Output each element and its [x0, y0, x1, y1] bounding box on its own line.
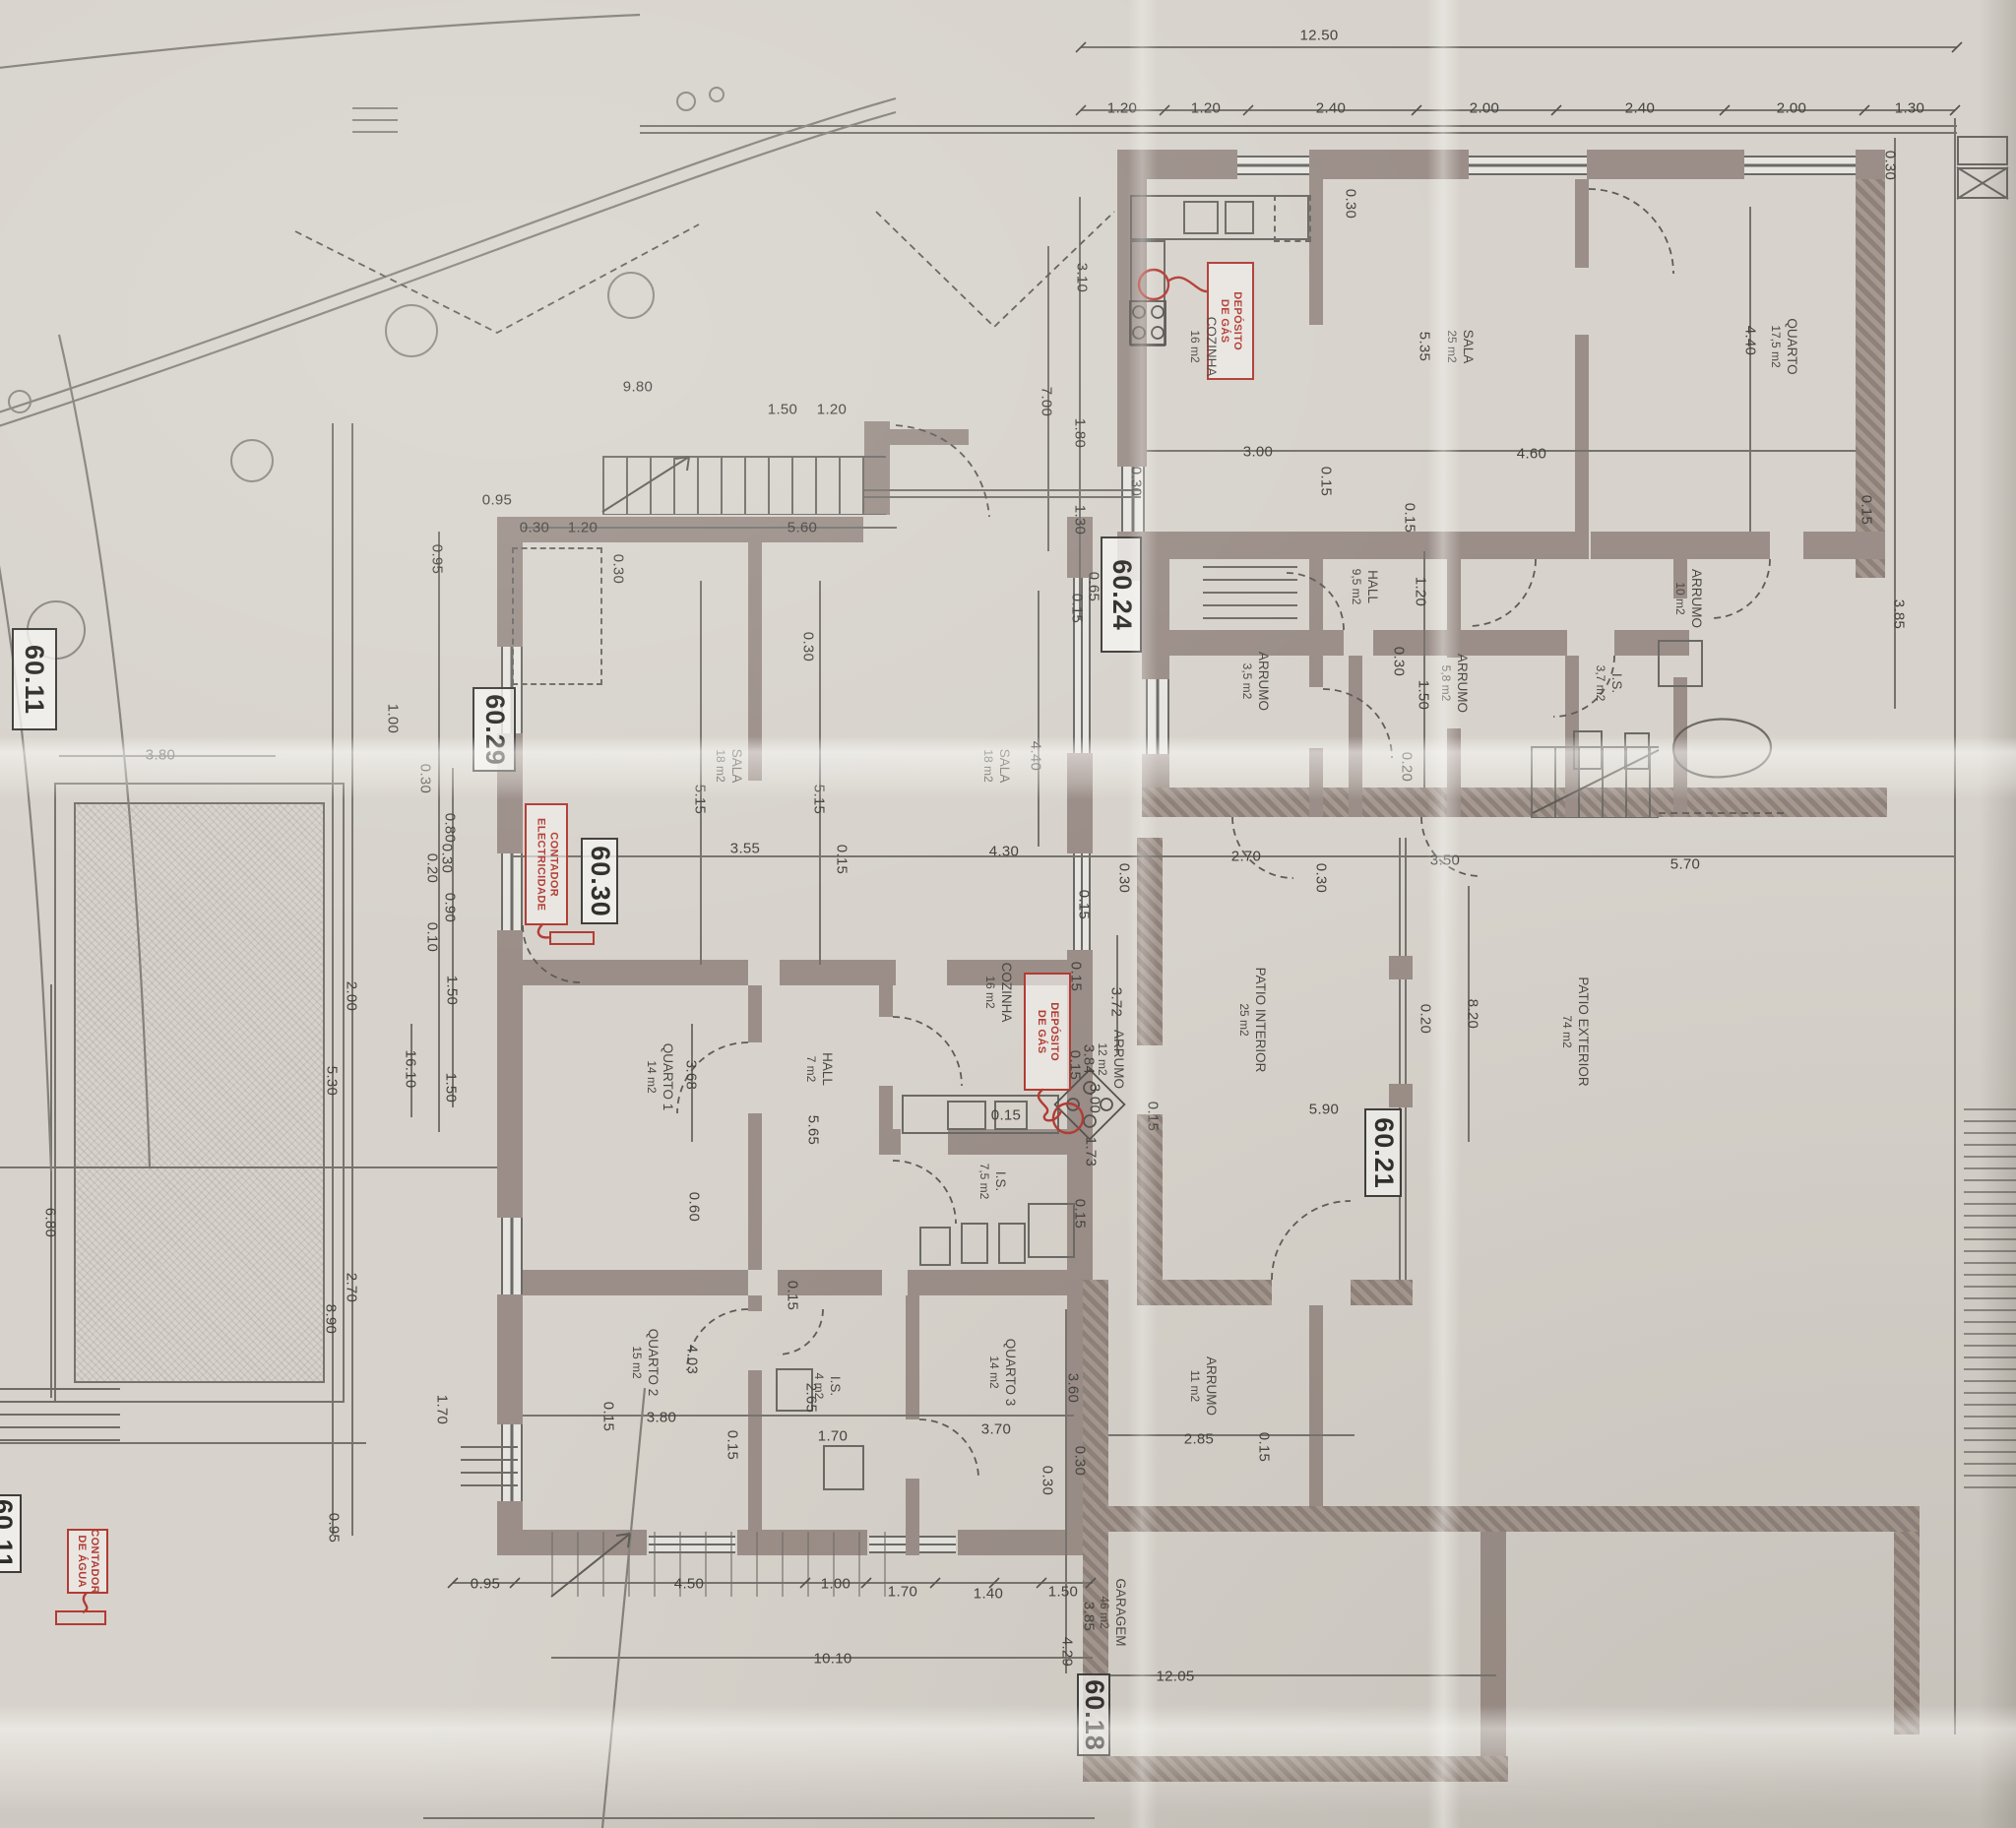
dimension-label: 2.00 [1777, 100, 1806, 117]
dimension-label: 0.15 [1318, 467, 1335, 496]
dimension-label: 0.95 [326, 1513, 343, 1543]
dimension-label: 5.65 [805, 1115, 822, 1145]
ref-label-60-11: 60.11 [12, 628, 57, 730]
dimension-label: 4.30 [989, 844, 1019, 860]
dimension-label: 3.50 [1430, 852, 1460, 869]
tree-circle [386, 305, 437, 356]
dimension-label: 0.15 [991, 1107, 1021, 1124]
dimension-label: 0.20 [424, 853, 441, 883]
door-arc [893, 1017, 962, 1086]
pen-circle [1673, 719, 1771, 777]
dimension-label: 3.72 [1108, 987, 1125, 1017]
tree-circle [677, 93, 695, 110]
ref-label-60-21: 60.21 [1364, 1108, 1402, 1197]
stove-icon [1130, 301, 1165, 345]
room-area: 17,5 m2 [1768, 318, 1783, 374]
dimension-label: 0.80 [442, 813, 459, 843]
door-arc [896, 425, 989, 517]
stairs-arrow [551, 1534, 630, 1597]
ref-text: 60.30 [585, 846, 615, 917]
room-area: 4 m2 [811, 1373, 826, 1400]
room-area: 46 m2 [1097, 1578, 1111, 1646]
room-label-cozinha: COZINHA16 m2 [982, 963, 1014, 1023]
dimension-label: 2.00 [1470, 100, 1499, 117]
ref-label-60-18: 60.18 [1077, 1673, 1110, 1756]
dimension-label: 1.30 [1072, 505, 1089, 535]
dimension-label: 0.15 [600, 1402, 617, 1431]
dimension-label: 2.85 [1184, 1431, 1214, 1448]
ref-label-60-29: 60.29 [472, 687, 516, 772]
room-label-arrumo: ARRUMO3,5 m2 [1239, 652, 1271, 711]
tree-circle [9, 391, 31, 412]
dimension-label: 5.15 [692, 785, 709, 814]
room-label-arrumo: ARRUMO11 m2 [1187, 1356, 1219, 1416]
room-name: HALL [1363, 569, 1380, 605]
dimension-label: 5.60 [787, 520, 817, 536]
dimension-label: 3.60 [1065, 1373, 1082, 1403]
room-label-hall: HALL7 m2 [803, 1052, 835, 1086]
dimension-label: 5.15 [811, 785, 828, 814]
room-name: ARRUMO [1254, 652, 1271, 711]
door-arc [1469, 559, 1536, 626]
dimension-label: 1.70 [888, 1584, 917, 1601]
room-area: 25 m2 [1236, 968, 1251, 1073]
ref-text: 60.24 [1106, 559, 1137, 631]
dimension-label: 3.10 [1074, 263, 1091, 292]
ref-text: 60.11 [0, 1498, 19, 1568]
room-name: PATIO EXTERIOR [1574, 977, 1591, 1086]
room-name: ARRUMO [1202, 1356, 1219, 1416]
dimension-label: 0.15 [834, 845, 850, 874]
dimension-label: 3.00 [1243, 444, 1273, 461]
dimension-label: 8.20 [1465, 999, 1481, 1029]
room-label-quarto-2: QUARTO 215 m2 [629, 1329, 661, 1397]
dimension-label: 1.50 [1048, 1584, 1078, 1601]
room-label-arrumo: ARRUMO5,8 m2 [1438, 654, 1470, 713]
dimension-label: 1.40 [974, 1586, 1003, 1603]
door-arc [893, 1161, 956, 1224]
gas-point-circle [1139, 270, 1168, 299]
dimension-label: 1.20 [817, 402, 847, 418]
room-area: 16 m2 [1187, 317, 1202, 377]
dimension-label: 6.80 [42, 1208, 59, 1237]
dimension-label: 0.60 [686, 1192, 703, 1222]
door-arc [1272, 1201, 1351, 1280]
room-label-arrumo: ARRUMO10 m2 [1672, 569, 1704, 628]
dimension-label: 0.30 [1343, 189, 1359, 219]
dimension-label: 0.30 [1313, 863, 1330, 893]
road-curve [602, 1388, 645, 1828]
dimension-label: 0.10 [424, 922, 441, 952]
room-area: 25 m2 [1444, 330, 1459, 364]
room-area: 5,8 m2 [1438, 654, 1453, 713]
dimension-label: 0.95 [471, 1576, 500, 1593]
room-label-i-s-: I.S.3,7 m2 [1593, 665, 1624, 702]
dimension-label: 0.15 [1068, 962, 1085, 991]
dimension-label: 0.15 [785, 1281, 801, 1310]
dimension-label: 2.00 [344, 981, 360, 1011]
red-annotation-target [55, 1610, 106, 1625]
dimension-label: 4.03 [684, 1345, 701, 1374]
room-area: 9,5 m2 [1349, 569, 1363, 605]
door-arc [919, 1419, 978, 1479]
dimension-label: 1.50 [443, 1073, 460, 1103]
dimension-label: 1.00 [385, 704, 402, 733]
dimension-label: 9.80 [623, 379, 653, 396]
dimension-label: 5.70 [1670, 856, 1700, 873]
dimension-label: 5.35 [1417, 332, 1433, 361]
dimension-label: 4.29 [1059, 1637, 1076, 1667]
room-name: QUARTO 1 [659, 1043, 675, 1111]
red-annotation: CONTADOR ELECTRICIDADE [525, 803, 568, 925]
ref-text: 60.21 [1368, 1117, 1399, 1189]
room-name: QUARTO [1783, 318, 1799, 374]
dimension-label: 5.90 [1309, 1102, 1339, 1118]
dimension-label: 1.20 [1191, 100, 1221, 117]
dimension-label: 1.20 [1413, 577, 1429, 606]
room-label-sala: SALA18 m2 [713, 749, 744, 784]
room-label-i-s-: I.S.4 m2 [811, 1373, 843, 1400]
room-area: 3,5 m2 [1239, 652, 1254, 711]
room-label-patio-interior: PATIO INTERIOR25 m2 [1236, 968, 1268, 1073]
dimension-label: 3.55 [730, 841, 760, 857]
dimension-label: 0.30 [610, 554, 627, 584]
dimension-label: 1.50 [444, 976, 461, 1005]
room-name: I.S. [991, 1164, 1008, 1200]
ref-text: 60.11 [20, 644, 50, 714]
room-area: 14 m2 [986, 1339, 1001, 1407]
floorplan-sheet: 12.501.201.202.402.002.402.001.300.303.1… [0, 0, 2016, 1828]
dimension-label: 0.30 [417, 764, 434, 793]
tree-circle [710, 88, 724, 101]
dimension-label: 3.80 [647, 1410, 676, 1426]
ref-label-60-24: 60.24 [1101, 536, 1142, 653]
dimension-label: 0.15 [1145, 1102, 1162, 1131]
dimension-label: 10.10 [813, 1651, 851, 1668]
dimension-label: 0.30 [800, 632, 817, 662]
room-name: QUARTO 2 [644, 1329, 661, 1397]
dimension-label: 3.68 [683, 1060, 700, 1090]
room-area: 18 m2 [980, 749, 995, 784]
dimension-label: 0.15 [1069, 594, 1086, 623]
dimension-label: 1.73 [1083, 1137, 1100, 1166]
plot-symbol-x [1957, 167, 2008, 199]
red-annotation-text: CONTADOR ELECTRICIDADE [534, 818, 559, 911]
dimension-label: 4.40 [1028, 741, 1044, 771]
dimension-label: 0.30 [1882, 151, 1899, 180]
red-squiggle [83, 1593, 87, 1612]
dimension-label: 1.20 [1107, 100, 1137, 117]
dimension-label: 0.15 [1076, 890, 1093, 919]
door-arc [1323, 689, 1392, 758]
tree-circle [231, 440, 273, 481]
dimension-label: 0.15 [1858, 495, 1875, 525]
dimension-label: 1.70 [434, 1395, 451, 1424]
room-name: HALL [818, 1052, 835, 1086]
stairs-arrow [602, 457, 689, 512]
room-name: SALA [995, 749, 1012, 784]
room-name: ARRUMO [1453, 654, 1470, 713]
room-label-sala: SALA25 m2 [1444, 330, 1476, 364]
red-squiggle [1039, 1089, 1061, 1120]
room-area: 3,7 m2 [1593, 665, 1607, 702]
room-area: 7 m2 [803, 1052, 818, 1086]
room-area: 12 m2 [1095, 1030, 1109, 1089]
room-area: 16 m2 [982, 963, 997, 1023]
room-area: 10 m2 [1672, 569, 1687, 628]
room-name: SALA [727, 749, 744, 784]
stairs-arrow [1533, 750, 1659, 813]
room-label-sala: SALA18 m2 [980, 749, 1012, 784]
dimension-label: 1.50 [768, 402, 797, 418]
dimension-label: 0.30 [1128, 467, 1145, 496]
room-area: 15 m2 [629, 1329, 644, 1397]
dimension-label: 0.30 [1116, 863, 1133, 893]
room-area: 7,5 m2 [976, 1164, 991, 1200]
dimension-label: 0.20 [1399, 752, 1416, 782]
dimension-label: 1.80 [1072, 418, 1089, 448]
dimension-label: 2.70 [344, 1273, 360, 1302]
room-name: I.S. [1607, 665, 1624, 702]
dimension-label: 2.40 [1625, 100, 1655, 117]
door-arc [1589, 189, 1673, 274]
dimension-label: 3.85 [1891, 599, 1908, 629]
room-name: COZINHA [1202, 317, 1219, 377]
red-annotation-target [549, 931, 595, 945]
dimension-label: 8.90 [323, 1304, 340, 1334]
room-label-quarto-1: QUARTO 114 m2 [644, 1043, 675, 1111]
room-label-quarto-3: QUARTO 314 m2 [986, 1339, 1018, 1407]
ref-label-60-11: 60.11 [0, 1494, 22, 1573]
dimension-label: 0.30 [1391, 647, 1408, 676]
dimension-label: 3.85 [1081, 1602, 1098, 1631]
dimension-label: 0.95 [429, 544, 446, 574]
dimension-label: 12.05 [1156, 1669, 1194, 1685]
red-annotation: DEPÓSITO DE GÁS [1024, 973, 1071, 1091]
dimension-label: 1.20 [568, 520, 598, 536]
tree-circle [608, 273, 654, 318]
dimension-label: 12.50 [1299, 28, 1338, 44]
dimension-label: 2.70 [1231, 849, 1261, 865]
room-area: 14 m2 [644, 1043, 659, 1111]
dimension-label: 0.15 [1072, 1199, 1089, 1229]
red-annotation-text: DEPÓSITO DE GÁS [1218, 291, 1243, 350]
dimension-label: 2.40 [1316, 100, 1346, 117]
room-label-cozinha: COZINHA16 m2 [1187, 317, 1219, 377]
room-name: ARRUMO [1687, 569, 1704, 628]
dimension-label: 0.65 [1086, 572, 1102, 601]
red-annotation-text: DEPÓSITO DE GÁS [1035, 1002, 1060, 1061]
room-name: ARRUMO [1109, 1030, 1126, 1089]
road-curve [0, 15, 640, 69]
red-squiggle [1167, 278, 1209, 291]
dimension-label: 0.20 [1417, 1004, 1434, 1034]
room-name: GARAGEM [1111, 1578, 1128, 1646]
room-label-patio-exterior: PATIO EXTERIOR74 m2 [1559, 977, 1591, 1086]
dimension-label: 0.15 [1256, 1432, 1273, 1462]
dimension-label: 3.80 [146, 747, 175, 764]
red-annotation: CONTADOR DE ÁGUA [67, 1529, 108, 1594]
door-arc [1287, 573, 1344, 630]
dimension-label: 1.50 [1416, 680, 1432, 710]
dimension-label: 0.30 [520, 520, 549, 536]
ref-label-60-30: 60.30 [581, 838, 618, 924]
room-label-quarto: QUARTO17,5 m2 [1768, 318, 1799, 374]
dimension-label: 4.60 [1517, 446, 1546, 463]
room-label-garagem: GARAGEM46 m2 [1097, 1578, 1128, 1646]
dimension-label: 0.90 [442, 893, 459, 922]
dimension-label: 0.30 [1072, 1446, 1089, 1476]
road-curve [0, 112, 896, 445]
dimension-label: 7.00 [1039, 387, 1055, 416]
dimension-label: 0.15 [724, 1430, 741, 1460]
room-label-arrumo: ARRUMO12 m2 [1095, 1030, 1126, 1089]
room-label-hall: HALL9,5 m2 [1349, 569, 1380, 605]
room-area: 74 m2 [1559, 977, 1574, 1086]
road-curve [0, 354, 51, 1171]
dimension-label: 1.00 [821, 1576, 850, 1593]
ref-text: 60.18 [1079, 1679, 1109, 1751]
dimension-label: 3.70 [981, 1421, 1011, 1438]
room-name: COZINHA [997, 963, 1014, 1023]
room-area: 11 m2 [1187, 1356, 1202, 1416]
plan-linework [0, 0, 2016, 1828]
dimension-label: 1.70 [818, 1428, 848, 1445]
dimension-label: 0.30 [439, 844, 456, 873]
dimension-label: 4.40 [1742, 326, 1759, 355]
room-name: QUARTO 3 [1001, 1339, 1018, 1407]
dimension-label: 16.10 [403, 1049, 419, 1088]
red-annotation-text: CONTADOR DE ÁGUA [75, 1529, 100, 1594]
dimension-label: 0.30 [1039, 1466, 1056, 1495]
dimension-label: 0.95 [482, 492, 512, 509]
room-area: 18 m2 [713, 749, 727, 784]
room-name: SALA [1459, 330, 1476, 364]
room-name: PATIO INTERIOR [1251, 968, 1268, 1073]
dimension-label: 0.15 [1402, 503, 1418, 533]
road-curve [59, 335, 150, 1166]
room-label-i-s-: I.S.7,5 m2 [976, 1164, 1008, 1200]
dimension-label: 4.50 [674, 1576, 704, 1593]
dimension-label: 1.30 [1895, 100, 1924, 117]
door-arc [778, 1309, 823, 1355]
door-arc [1711, 559, 1770, 618]
dimension-label: 5.30 [324, 1066, 341, 1096]
room-name: I.S. [826, 1373, 843, 1400]
ref-text: 60.29 [479, 694, 510, 766]
